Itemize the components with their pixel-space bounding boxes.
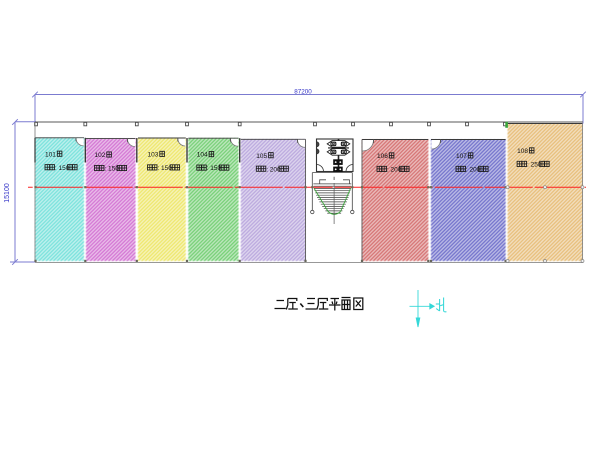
svg-text:101: 101 — [45, 151, 56, 158]
svg-text:107: 107 — [456, 153, 467, 160]
svg-text:102: 102 — [95, 152, 106, 159]
svg-text:104: 104 — [197, 152, 208, 159]
svg-text:87200: 87200 — [294, 88, 312, 95]
svg-text:15100: 15100 — [4, 183, 11, 203]
svg-text:103: 103 — [148, 152, 159, 159]
svg-text:108: 108 — [517, 148, 528, 155]
svg-text:106: 106 — [377, 153, 388, 160]
svg-text:105: 105 — [256, 153, 267, 160]
